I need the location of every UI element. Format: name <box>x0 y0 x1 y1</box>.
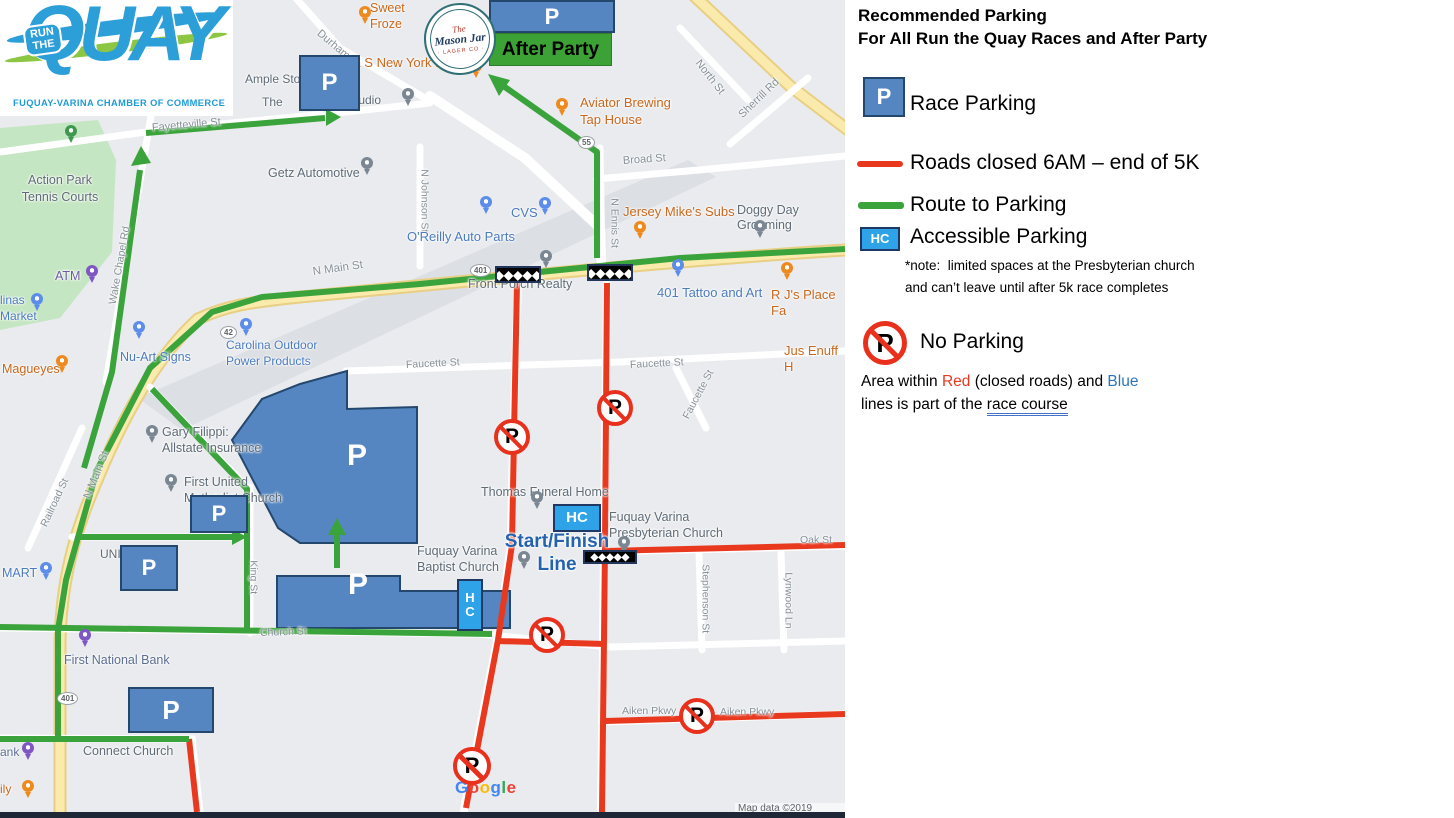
parking-marker: P <box>120 545 178 591</box>
no-parking-icon: P <box>529 617 565 653</box>
poi-pin-head <box>634 221 646 233</box>
poi-pin <box>539 197 551 215</box>
poi-pin <box>31 293 43 311</box>
route-shield: 42 <box>220 326 237 339</box>
legend-no-parking-icon: P <box>863 321 907 365</box>
map-bottom-edge <box>0 812 845 818</box>
map-label: Carolina Outdoor Power Products <box>226 338 317 369</box>
poi-pin-tail <box>543 262 549 268</box>
map-label: Fuquay Varina Baptist Church <box>417 543 499 576</box>
poi-pin-tail <box>243 330 249 336</box>
poi-pin-head <box>146 425 158 437</box>
parking-lot-letter: P <box>348 568 368 602</box>
poi-pin <box>56 355 68 373</box>
map-label: Aviator Brewing Tap House <box>580 95 671 129</box>
legend-area-line1: Area within Red (closed roads) and Blue <box>861 373 1138 391</box>
legend-accessible-label: Accessible Parking <box>910 225 1087 249</box>
poi-pin-tail <box>784 274 790 280</box>
parking-marker: P <box>299 55 360 111</box>
checkered-flag-marker: ◆◆◆◆◆ <box>587 264 633 281</box>
poi-pin-tail <box>59 367 65 373</box>
poi-pin-head <box>65 125 77 137</box>
map-label: MART <box>2 566 37 581</box>
map-label: Aiken Pkwy <box>622 705 676 718</box>
poi-pin-tail <box>637 233 643 239</box>
poi-pin-head <box>165 474 177 486</box>
poi-pin <box>40 562 52 580</box>
poi-pin-tail <box>25 792 31 798</box>
race-course-underlined: race course <box>987 396 1068 416</box>
parking-marker: P <box>190 495 248 533</box>
map-label: N Ennis St <box>608 198 621 248</box>
poi-pin-head <box>86 265 98 277</box>
poi-pin-tail <box>534 503 540 509</box>
parking-lot-letter: P <box>347 439 367 473</box>
checkered-flag-marker: ◆◆◆◆◆ <box>583 550 637 564</box>
poi-pin <box>518 551 530 569</box>
map-label: Jersey Mike's Subs <box>623 204 735 220</box>
poi-pin-head <box>556 98 568 110</box>
poi-pin-tail <box>483 208 489 214</box>
map-label: CVS <box>511 205 538 221</box>
poi-pin-head <box>79 629 91 641</box>
after-party-label: After Party <box>489 33 612 66</box>
poi-pin-head <box>618 536 630 548</box>
map-label: Thomas Funeral Home <box>481 485 609 500</box>
no-parking-icon: P <box>679 698 715 734</box>
main-map-geometry <box>0 0 845 812</box>
poi-pin <box>754 220 766 238</box>
map-label: Church St <box>260 625 307 639</box>
poi-pin-tail <box>405 100 411 106</box>
map-label: Connect Church <box>83 744 173 759</box>
map-attribution[interactable]: Map data ©2019 Google <box>735 803 845 812</box>
map-label: Magueyes <box>2 362 60 377</box>
route-shield: 55 <box>578 136 595 149</box>
poi-pin-tail <box>136 333 142 339</box>
poi-pin-head <box>133 321 145 333</box>
checkered-flag-marker: ◆◆◆◆◆ <box>495 266 541 283</box>
poi-pin-head <box>31 293 43 305</box>
google-logo-letter: e <box>507 778 517 797</box>
legend-blue-word: Blue <box>1107 373 1138 390</box>
poi-pin <box>146 425 158 443</box>
poi-pin <box>672 259 684 277</box>
poi-pin <box>531 491 543 509</box>
accessible-parking-marker: HC <box>553 504 601 532</box>
poi-pin <box>133 321 145 339</box>
legend-no-parking-label: No Parking <box>920 330 1024 354</box>
legend-area-line2: lines is part of the race course <box>861 396 1068 414</box>
no-parking-icon: P <box>597 390 633 426</box>
poi-pin-head <box>531 491 543 503</box>
legend-race-parking-swatch: P <box>863 77 905 117</box>
map-label: Getz Automotive <box>268 166 360 181</box>
poi-pin-tail <box>675 271 681 277</box>
poi-pin-tail <box>542 209 548 215</box>
poi-pin <box>781 262 793 280</box>
main-map[interactable]: Google Map data ©2019 Google Durham StFa… <box>0 0 845 812</box>
poi-pin-head <box>359 6 371 18</box>
poi-pin-head <box>240 318 252 330</box>
legend-accessible-swatch: HC <box>860 227 900 251</box>
poi-pin-tail <box>43 574 49 580</box>
map-label: N Johnson St <box>418 169 431 232</box>
poi-pin-tail <box>68 137 74 143</box>
map-label: Stephenson St <box>699 564 712 633</box>
parking-marker: P <box>489 0 615 33</box>
legend-roads-closed-swatch <box>857 161 903 167</box>
poi-pin-head <box>540 250 552 262</box>
google-logo-letter: g <box>491 778 502 797</box>
map-label: ATM <box>55 269 80 284</box>
poi-pin-tail <box>521 563 527 569</box>
poi-pin-head <box>22 780 34 792</box>
screenshot-root: Google Map data ©2019 Google Durham StFa… <box>0 0 1454 818</box>
legend-roads-closed-label: Roads closed 6AM – end of 5K <box>910 151 1200 175</box>
no-parking-icon: P <box>453 747 491 785</box>
run-the-quay-logo: QUAY RUN THE FUQUAY-VARINA CHAMBER OF CO… <box>0 0 233 116</box>
legend-route-label: Route to Parking <box>910 193 1066 217</box>
poi-pin-head <box>361 157 373 169</box>
poi-pin-tail <box>34 305 40 311</box>
legend-red-word: Red <box>942 373 970 390</box>
poi-pin <box>79 629 91 647</box>
poi-pin-head <box>539 197 551 209</box>
poi-pin <box>22 780 34 798</box>
legend-race-parking-label: Race Parking <box>910 92 1036 116</box>
map-label: 401 Tattoo and Art <box>657 285 762 301</box>
map-label: Oak St <box>800 534 832 547</box>
poi-pin <box>65 125 77 143</box>
legend-note-line2: and can’t leave until after 5k race comp… <box>905 280 1168 295</box>
legend-title-line1: Recommended Parking <box>858 6 1047 26</box>
poi-pin <box>402 88 414 106</box>
poi-pin <box>634 221 646 239</box>
poi-pin-tail <box>757 232 763 238</box>
poi-pin-tail <box>364 169 370 175</box>
poi-pin-tail <box>89 277 95 283</box>
poi-pin-tail <box>168 486 174 492</box>
poi-pin-tail <box>473 72 479 78</box>
logo-subtitle: FUQUAY-VARINA CHAMBER OF COMMERCE <box>13 98 225 108</box>
accessible-parking-marker: HC <box>457 579 483 631</box>
map-label: ily <box>0 782 11 796</box>
map-label: Jus Enuff H <box>784 343 845 374</box>
poi-pin-tail <box>82 641 88 647</box>
map-label: Aiken Pkwy <box>720 706 774 719</box>
poi-pin-head <box>56 355 68 367</box>
map-label: ank <box>0 745 19 759</box>
poi-pin <box>22 742 34 760</box>
poi-pin-tail <box>25 754 31 760</box>
map-label: Gary Filippi: Allstate Insurance <box>162 424 261 457</box>
map-label: Sweet Froze <box>370 1 405 32</box>
map-label: Lynwood Ln <box>782 572 795 628</box>
map-label: UNI <box>100 547 121 561</box>
poi-pin-head <box>480 196 492 208</box>
map-label: First National Bank <box>64 653 170 668</box>
no-parking-icon: P <box>494 419 530 455</box>
poi-pin-tail <box>559 110 565 116</box>
poi-pin <box>556 98 568 116</box>
poi-pin-head <box>781 262 793 274</box>
poi-pin <box>361 157 373 175</box>
poi-pin <box>480 196 492 214</box>
legend-note-line1: *note: limited spaces at the Presbyteria… <box>905 258 1195 273</box>
poi-pin-head <box>22 742 34 754</box>
poi-pin-head <box>402 88 414 100</box>
poi-pin-head <box>40 562 52 574</box>
map-label: Nu-Art Signs <box>120 350 191 365</box>
poi-pin <box>359 6 371 24</box>
poi-pin-tail <box>362 18 368 24</box>
poi-pin <box>240 318 252 336</box>
poi-pin-head <box>518 551 530 563</box>
poi-pin <box>540 250 552 268</box>
parking-marker: P <box>128 687 214 733</box>
map-label: O'Reilly Auto Parts <box>407 229 515 245</box>
poi-pin-head <box>672 259 684 271</box>
map-label: The <box>262 95 283 109</box>
poi-pin <box>165 474 177 492</box>
poi-pin <box>86 265 98 283</box>
legend-route-swatch <box>858 202 904 209</box>
map-label: Action Park Tennis Courts <box>22 172 98 206</box>
legend-title-line2: For All Run the Quay Races and After Par… <box>858 29 1207 49</box>
logo-run-the-badge: RUN THE <box>22 22 64 58</box>
poi-pin-head <box>754 220 766 232</box>
map-label: King St <box>247 560 260 594</box>
legend-panel: Recommended Parking For All Run the Quay… <box>845 0 1454 818</box>
map-label: R J's Place Fa <box>771 287 845 318</box>
poi-pin-tail <box>149 437 155 443</box>
